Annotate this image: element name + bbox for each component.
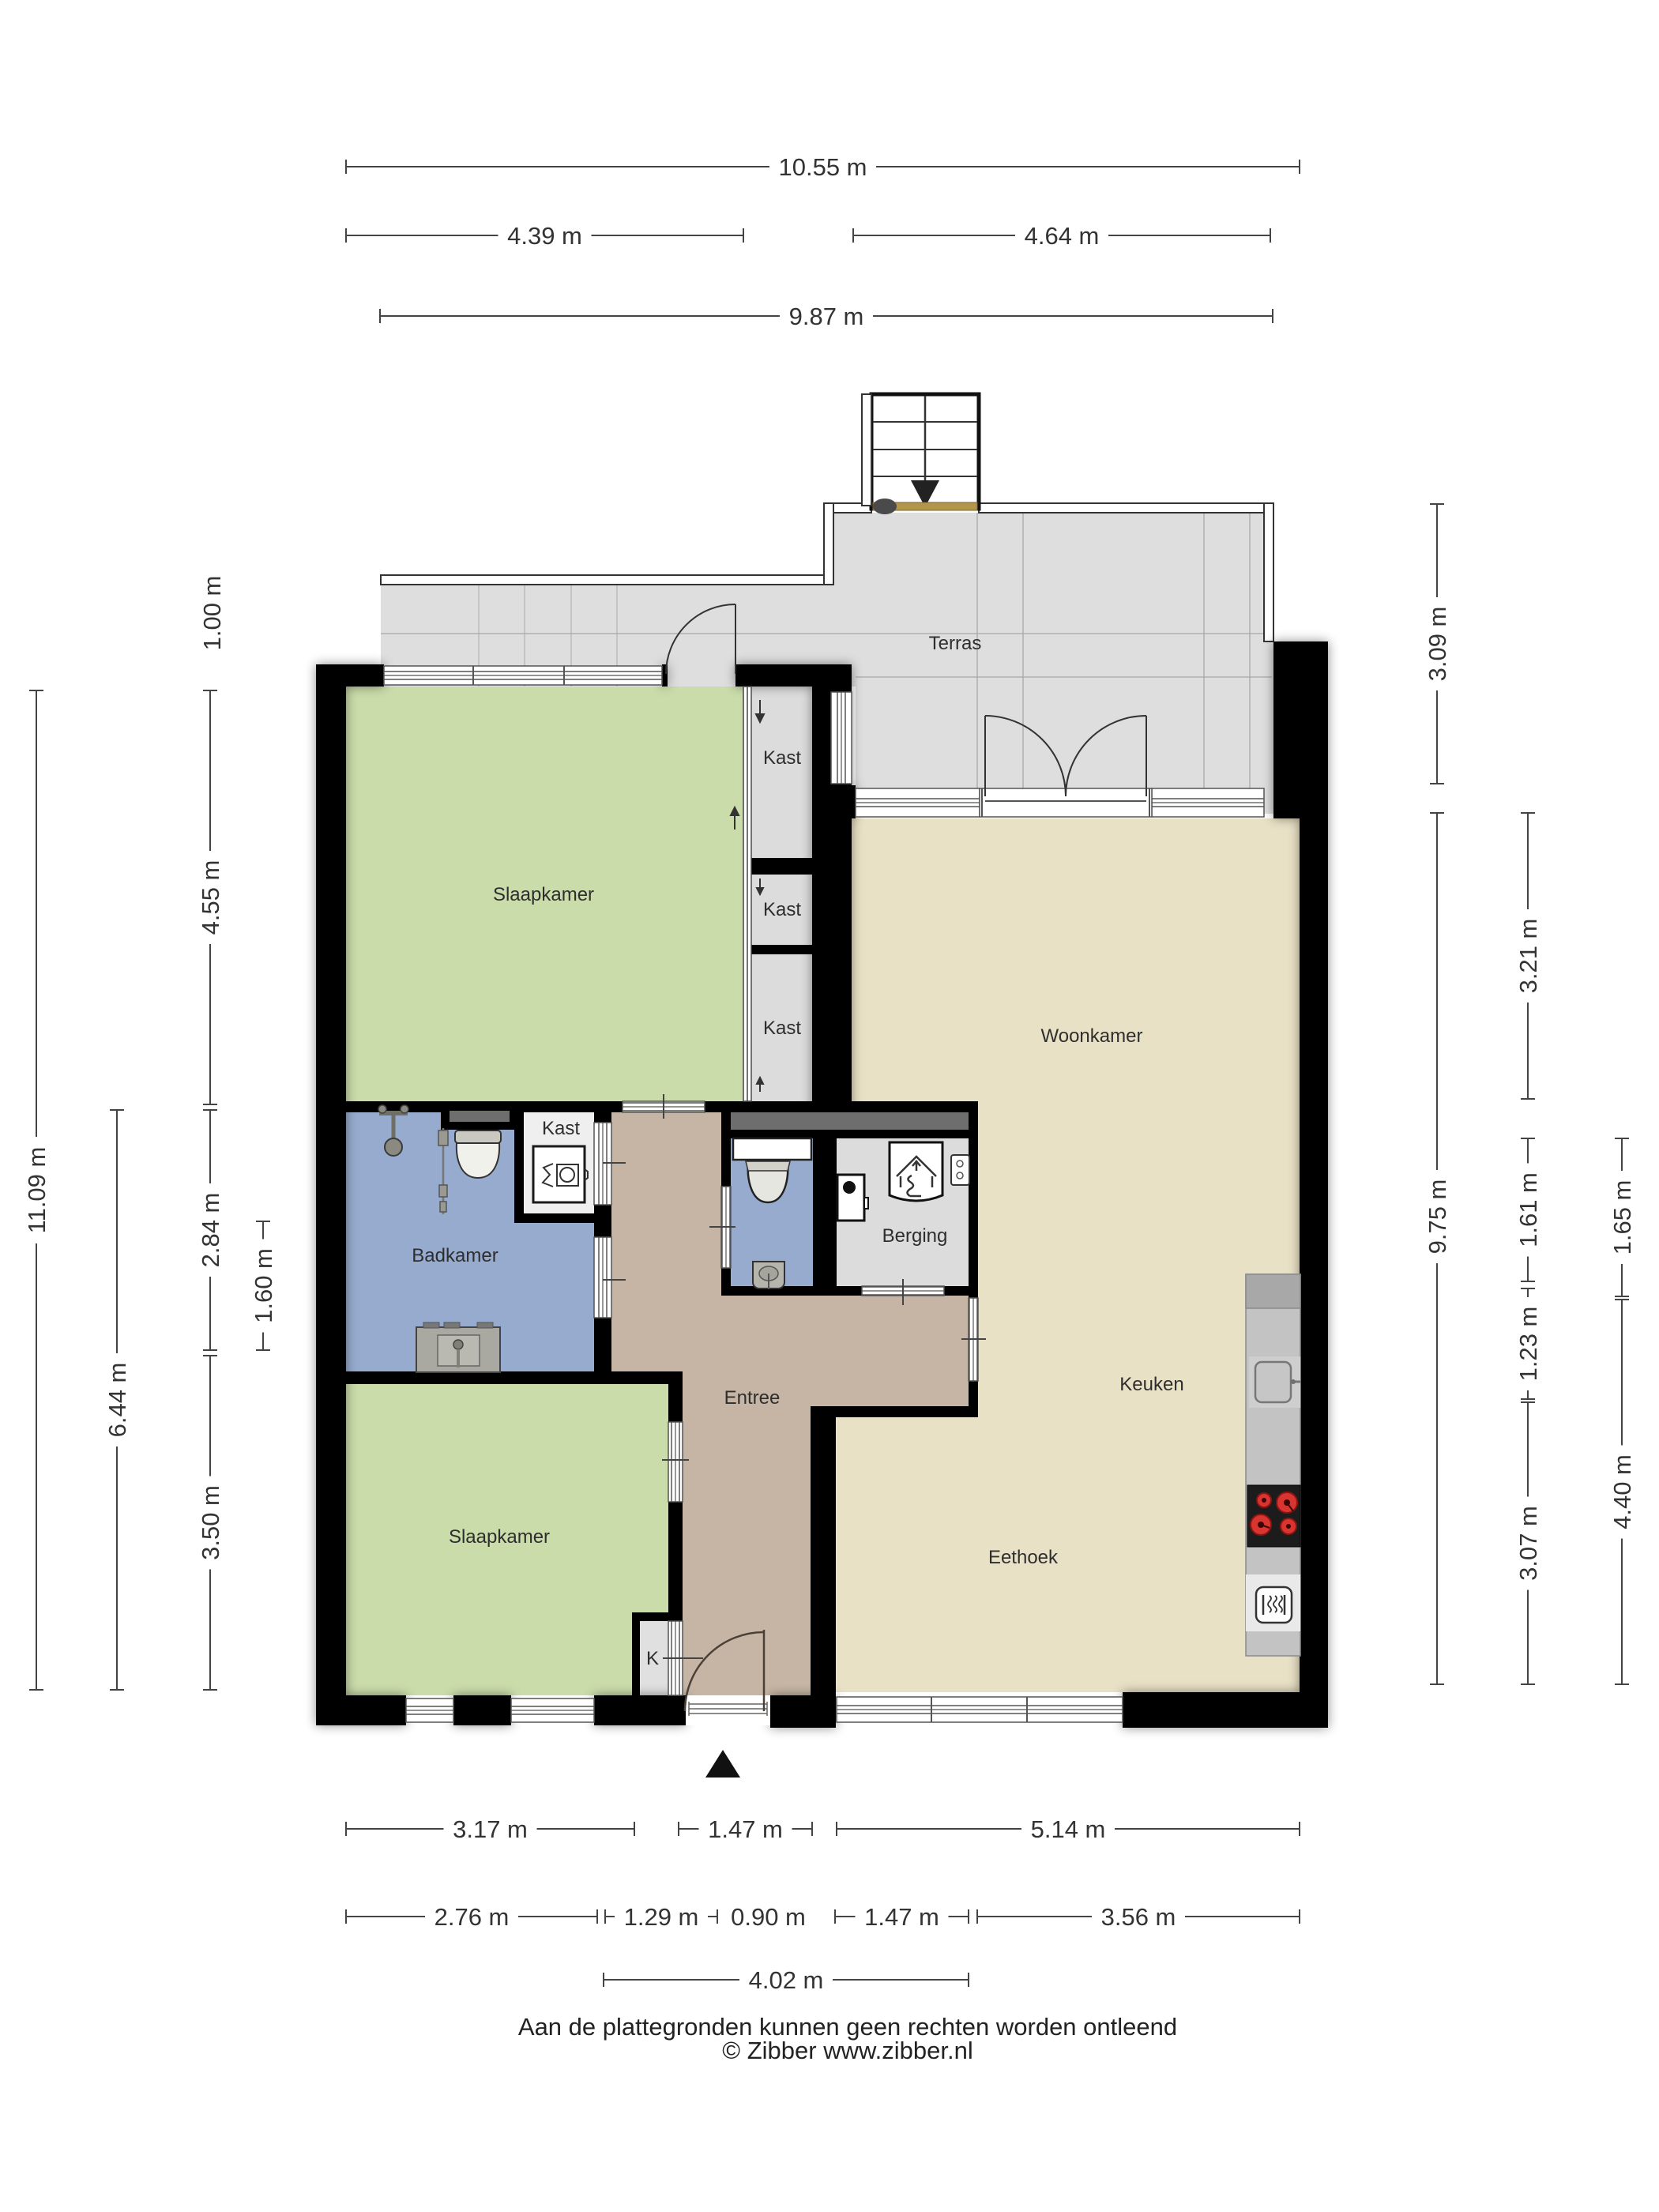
svg-text:4.39 m: 4.39 m [507, 222, 582, 250]
svg-text:Eethoek: Eethoek [988, 1547, 1059, 1568]
svg-text:5.14 m: 5.14 m [1031, 1815, 1106, 1843]
svg-text:0.90 m: 0.90 m [731, 1903, 806, 1931]
svg-text:3.56 m: 3.56 m [1101, 1903, 1176, 1931]
svg-text:Berging: Berging [882, 1225, 948, 1247]
svg-text:6.44 m: 6.44 m [103, 1363, 131, 1438]
svg-text:Woonkamer: Woonkamer [1041, 1025, 1143, 1047]
svg-text:Kast: Kast [763, 899, 801, 920]
svg-text:1.47 m: 1.47 m [864, 1903, 939, 1931]
svg-text:3.17 m: 3.17 m [453, 1815, 528, 1843]
svg-text:1.60 m: 1.60 m [250, 1248, 277, 1323]
svg-text:1.23 m: 1.23 m [1514, 1307, 1542, 1382]
svg-text:Entree: Entree [724, 1387, 781, 1409]
svg-text:Slaapkamer: Slaapkamer [493, 884, 594, 905]
svg-text:4.64 m: 4.64 m [1025, 222, 1100, 250]
svg-text:Terras: Terras [929, 633, 982, 654]
svg-text:K: K [646, 1648, 659, 1669]
svg-text:4.02 m: 4.02 m [749, 1966, 824, 1994]
svg-text:Keuken: Keuken [1119, 1374, 1183, 1395]
svg-text:9.75 m: 9.75 m [1424, 1179, 1451, 1255]
svg-text:Kast: Kast [542, 1118, 580, 1139]
svg-text:3.09 m: 3.09 m [1424, 607, 1451, 682]
svg-text:2.84 m: 2.84 m [197, 1193, 224, 1268]
svg-text:2.76 m: 2.76 m [434, 1903, 510, 1931]
svg-text:Slaapkamer: Slaapkamer [449, 1526, 550, 1548]
svg-text:4.40 m: 4.40 m [1608, 1454, 1636, 1529]
svg-text:3.21 m: 3.21 m [1514, 919, 1542, 994]
svg-text:4.55 m: 4.55 m [197, 860, 224, 935]
svg-text:11.09 m: 11.09 m [23, 1147, 51, 1234]
svg-text:Kast: Kast [763, 1018, 801, 1039]
svg-text:Badkamer: Badkamer [412, 1245, 498, 1266]
svg-text:1.61 m: 1.61 m [1514, 1172, 1542, 1247]
svg-text:3.50 m: 3.50 m [197, 1485, 224, 1560]
svg-text:3.07 m: 3.07 m [1514, 1506, 1542, 1581]
svg-text:© Zibber www.zibber.nl: © Zibber www.zibber.nl [722, 2037, 972, 2064]
svg-text:1.00 m: 1.00 m [198, 576, 226, 651]
svg-text:Kast: Kast [763, 747, 801, 769]
svg-text:1.65 m: 1.65 m [1608, 1180, 1636, 1255]
svg-text:1.29 m: 1.29 m [624, 1903, 699, 1931]
svg-text:10.55 m: 10.55 m [778, 153, 867, 181]
svg-text:9.87 m: 9.87 m [789, 303, 864, 330]
svg-text:1.47 m: 1.47 m [708, 1815, 783, 1843]
